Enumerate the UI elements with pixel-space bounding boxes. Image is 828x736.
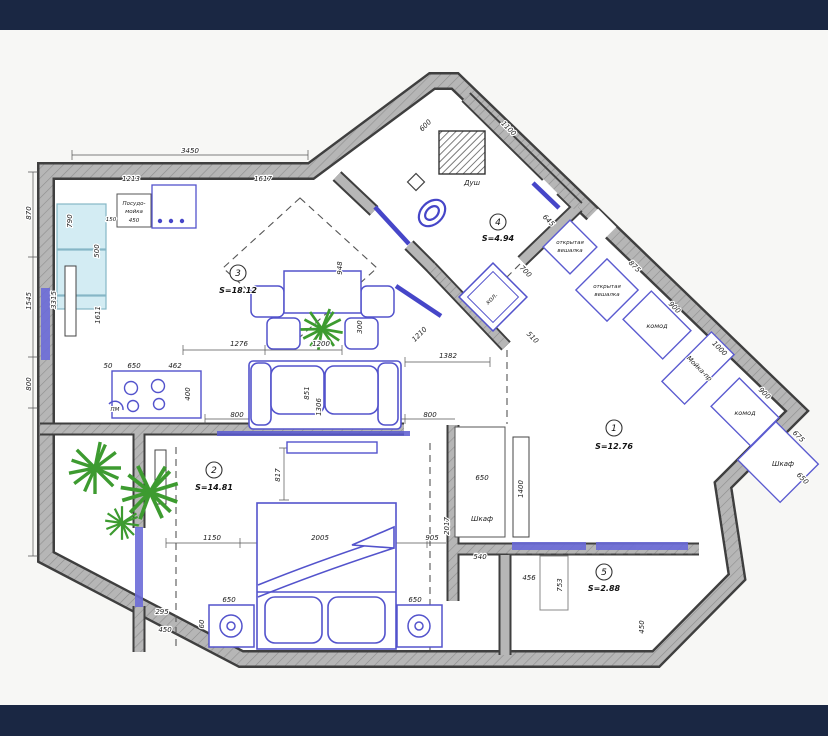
- floor-plan-viewer: 3 S=18.12 2 S=14.81 1 S=12.76 4 S=4.94 5…: [0, 0, 828, 736]
- dimension-label: 1400: [517, 480, 525, 498]
- room-2-area: S=14.81: [195, 483, 233, 492]
- dimension-label: 2017: [443, 517, 451, 535]
- dimension-label: 1213: [122, 175, 140, 183]
- dimension-label: 905: [425, 534, 439, 542]
- dimension-label: 60: [198, 619, 206, 628]
- hob-cabinet-box: [152, 185, 196, 228]
- stove-mark-label: ПМ: [111, 407, 120, 413]
- room-5-area: S=2.88: [588, 584, 621, 593]
- chair: [267, 318, 300, 349]
- pillow: [328, 597, 385, 643]
- dresser-label: комод: [646, 322, 668, 330]
- dimension-label: 650: [222, 596, 236, 604]
- dimension-label: 500: [93, 244, 101, 258]
- dimension-label: 851: [303, 386, 311, 399]
- radiator: [65, 266, 76, 336]
- letterbox-bottom: [0, 705, 828, 736]
- dimension-label: 456: [522, 574, 536, 582]
- room-3-number: 3: [235, 269, 241, 279]
- dimension-label: 1611: [94, 306, 102, 324]
- sofa-cushion: [325, 366, 378, 414]
- tv-line: [217, 431, 410, 436]
- window-balcony5-a: [512, 542, 586, 550]
- shower-tray-icon: [439, 131, 485, 174]
- dimension-label: 817: [274, 468, 282, 482]
- window-left-wall: [41, 288, 50, 360]
- pillow: [265, 597, 322, 643]
- room-1-number: 1: [611, 424, 617, 434]
- dimension-label: 3315: [50, 291, 58, 309]
- dimension-label: 3450: [181, 147, 199, 155]
- bed: [257, 503, 396, 649]
- room-2-number: 2: [211, 466, 217, 476]
- tv-console: [287, 442, 377, 453]
- dimension-label: 1545: [25, 292, 33, 310]
- room-3-area: S=18.12: [219, 286, 257, 295]
- sink-cabinet-label: мойка: [125, 209, 143, 215]
- sofa-armrest: [378, 363, 398, 425]
- floor-plan-drawing: 3 S=18.12 2 S=14.81 1 S=12.76 4 S=4.94 5…: [0, 0, 828, 736]
- room-1-area: S=12.76: [595, 442, 633, 451]
- dimension-label: 800: [423, 411, 437, 419]
- dimension-label: 870: [25, 206, 33, 220]
- dimension-label: 1382: [439, 352, 457, 360]
- dimension-label: 462: [168, 362, 182, 370]
- dimension-label: 2005: [311, 534, 329, 542]
- sink-cabinet-label: Посудо-: [123, 201, 146, 207]
- dimension-label: 790: [66, 214, 74, 228]
- open-hanger-label: вешалка: [594, 292, 620, 298]
- open-hanger-label: вешалка: [557, 248, 583, 254]
- dimension-label: 1200: [312, 340, 330, 348]
- dimension-label: 948: [336, 261, 344, 275]
- dimension-label: 800: [230, 411, 244, 419]
- dimension-label: 1306: [315, 398, 323, 416]
- dimension-label: 650: [127, 362, 141, 370]
- dimension-label: 650: [408, 596, 422, 604]
- dimension-label: 1276: [230, 340, 248, 348]
- open-hanger-label: открытая: [556, 240, 584, 246]
- dimension-label: 450: [158, 626, 172, 634]
- window-balcony-left: [135, 527, 143, 607]
- sofa: [249, 361, 401, 429]
- room-4-number: 4: [495, 218, 501, 228]
- dimension-label: 295: [155, 608, 169, 616]
- dresser-label: комод: [734, 409, 756, 417]
- window-balcony5-b: [596, 542, 688, 550]
- room-5-number: 5: [601, 568, 607, 578]
- dimension-label: 1617: [254, 175, 272, 183]
- sofa-armrest: [251, 363, 271, 425]
- dimension-label: 800: [25, 377, 33, 391]
- letterbox-top: [0, 0, 828, 30]
- dimension-label: 50: [104, 362, 113, 370]
- dining-table: [284, 271, 361, 313]
- open-hanger-label: открытая: [593, 284, 621, 290]
- dimension-label: 300: [356, 320, 364, 334]
- wardrobe-hall-label: Шкаф: [772, 460, 794, 468]
- shower-label: Душ: [463, 179, 481, 187]
- dimension-label: 400: [184, 387, 192, 401]
- room-4-area: S=4.94: [482, 234, 515, 243]
- chair: [361, 286, 394, 317]
- dimension-label: 753: [556, 578, 564, 591]
- dimension-label: 450: [638, 620, 646, 634]
- dimension-label: 650: [475, 474, 489, 482]
- dimension-label: 150: [106, 217, 117, 223]
- wardrobe-room2-label: Шкаф: [471, 515, 493, 523]
- dimension-label: 1150: [203, 534, 221, 542]
- sink-cabinet-label: 450: [129, 218, 140, 224]
- dimension-label: 540: [473, 553, 487, 561]
